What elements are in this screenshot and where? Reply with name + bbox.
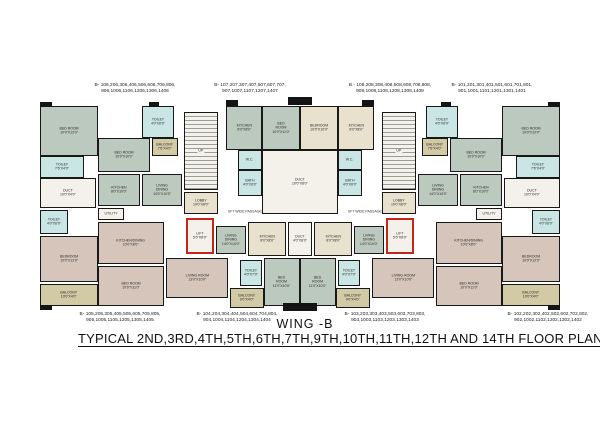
room-label-wc-right: W.C. xyxy=(346,158,354,162)
unit-label-text: B - 108,208,308,408,508,608,708,808,908,… xyxy=(349,82,431,94)
room-utility-left: UTILITY xyxy=(98,208,124,220)
passage-label-text: 6FT WIDE PASSAGE xyxy=(228,210,262,214)
unit-label-bottom-1: B- 105,205,305,405,505,605,705,805,905,1… xyxy=(53,311,188,331)
room-bedroom-far-left-bottom: BEDROOM 10'0"X12'0" xyxy=(40,236,98,282)
room-label-kitchen-center-bottom-left: KITCHEN 8'0"X8'0" xyxy=(259,235,274,243)
room-label-bedroom-right-top: BED ROOM 10'0"X10'0" xyxy=(466,151,485,159)
room-label-bedroom-far-left-bottom: BEDROOM 10'0"X12'0" xyxy=(60,255,78,263)
unit-label-top-4: B- 101,201,301,401,501,601,701,801,901,1… xyxy=(425,82,560,102)
room-utility-right: UTILITY xyxy=(476,208,502,220)
room-wc-right: W.C. xyxy=(338,150,362,170)
unit-label-bottom-3: B- 103,203,303,403,503,603,703,803,903,1… xyxy=(318,311,453,331)
room-stair-left: UP xyxy=(184,112,218,190)
room-label-bedroom-center-bottom-left: BED ROOM 11'0"X10'0" xyxy=(273,276,291,288)
room-kitchen-center-bottom-right: KITCHEN 8'0"X8'0" xyxy=(314,222,352,256)
room-label-duct-center-bottom: DUCT 4'0"X8'0" xyxy=(293,235,307,243)
room-balcony-right-bottom: BALCONY 9'0"X4'0" xyxy=(336,288,370,308)
room-label-living-dining-right-lower: LIVING DINING 14'0"X10'0" xyxy=(360,234,378,246)
room-label-kitchen-dining-right: KITCHEN/DINING 10'0"X8'0" xyxy=(455,239,484,247)
room-lift-left: LIFT 5'0"X8'0" xyxy=(186,218,214,254)
room-label-lobby-left: LOBBY 10'0"X8'0" xyxy=(193,199,209,207)
unit-label-text: B- 104,204,304,404,504,604,704,804,904,1… xyxy=(197,311,278,323)
room-label-lift-right: LIFT 5'0"X8'0" xyxy=(393,232,407,240)
room-living-dining-left: LIVING DINING 14'0"X10'0" xyxy=(142,174,182,206)
room-kitchen-left: KITCHEN 8'0"X10'0" xyxy=(98,174,140,206)
unit-label-top-1: B- 106,206,306,406,506,606,706,806,906,1… xyxy=(68,82,203,102)
wing-title: WING -B xyxy=(277,317,334,331)
wall-tab xyxy=(283,303,317,311)
room-kitchen-center-top-right: KITCHEN 8'0"X8'0" xyxy=(338,106,374,150)
room-label-bedroom-far-right-bottom: BEDROOM 10'0"X12'0" xyxy=(522,255,540,263)
room-label-bedroom-center-top-right: BEDROOM 10'0"X10'0" xyxy=(310,124,328,132)
room-toilet-right-top: TOILET 4'0"X6'0" xyxy=(426,106,458,138)
room-label-kitchen-dining-left: KITCHEN/DINING 10'0"X8'0" xyxy=(117,239,146,247)
room-living-dining-left-lower: LIVING DINING 14'0"X10'0" xyxy=(216,226,246,254)
room-bedroom-right-top: BED ROOM 10'0"X10'0" xyxy=(450,138,502,172)
room-label-stair-left: UP xyxy=(198,149,205,153)
room-duct-center: DUCT 10'0"X8'0" xyxy=(262,150,338,214)
room-label-balcony-right-top: BALCONY 7'6"X4'0" xyxy=(427,143,444,151)
room-label-toilet-right-top: TOILET 4'0"X6'0" xyxy=(435,118,449,126)
room-toilet-center-bottom-left: TOILET 4'0"X7'0" xyxy=(240,260,262,286)
wall-tab xyxy=(548,102,560,107)
room-label-balcony-left-top: BALCONY 7'6"X4'0" xyxy=(157,143,174,151)
room-balcony-far-left-bottom: BALCONY 10'0"X4'0" xyxy=(40,284,98,306)
room-bedroom-center-bottom-right: BED ROOM 11'0"X10'0" xyxy=(300,258,336,306)
room-label-toilet-left-top: TOILET 4'0"X6'0" xyxy=(151,118,165,126)
room-bedroom-left-bottom: BED ROOM 10'0"X11'0" xyxy=(98,266,164,306)
room-bath-left: BATH 4'0"X6'0" xyxy=(238,170,262,196)
room-living-room-right: LIVING ROOM 13'0"X10'0" xyxy=(372,258,434,298)
room-label-toilet-center-bottom-right: TOILET 4'0"X7'0" xyxy=(342,269,356,277)
room-duct-far-right: DUCT 10'0"X4'0" xyxy=(504,178,560,208)
unit-label-text: B- 101,201,301,401,501,601,701,801,901,1… xyxy=(452,82,533,94)
room-label-kitchen-center-top-right: KITCHEN 8'0"X8'0" xyxy=(348,124,363,132)
room-label-kitchen-left: KITCHEN 8'0"X10'0" xyxy=(111,186,127,194)
room-duct-center-bottom: DUCT 4'0"X8'0" xyxy=(288,222,312,256)
room-label-bedroom-far-right-top: BED ROOM 10'0"X12'0" xyxy=(521,127,540,135)
room-label-duct-far-left: DUCT 10'0"X4'0" xyxy=(60,189,76,197)
room-label-living-room-left: LIVING ROOM 13'0"X10'0" xyxy=(185,274,208,282)
room-bedroom-far-left-top: BED ROOM 10'0"X12'0" xyxy=(40,106,98,156)
room-label-bedroom-right-bottom: BED ROOM 10'0"X11'0" xyxy=(459,282,478,290)
room-label-stair-right: UP xyxy=(396,149,403,153)
room-toilet-far-left-mid: TOILET 4'0"X6'0" xyxy=(40,210,68,234)
room-label-duct-far-right: DUCT 10'0"X4'0" xyxy=(524,189,540,197)
floor-plan-canvas: BED ROOM 10'0"X12'0"TOILET 7'6"X4'0"DUCT… xyxy=(0,0,600,424)
wall-tab xyxy=(40,305,52,310)
room-bedroom-right-bottom: BED ROOM 10'0"X11'0" xyxy=(436,266,502,306)
passage-label-2: 6FT WIDE PASSAGE xyxy=(331,208,398,215)
room-label-balcony-far-left-bottom: BALCONY 10'0"X4'0" xyxy=(61,291,78,299)
room-label-bedroom-left-top: BED ROOM 10'0"X10'0" xyxy=(114,151,133,159)
passage-label-text: 6FT WIDE PASSAGE xyxy=(348,210,382,214)
room-bedroom-center-top-right: BEDROOM 10'0"X10'0" xyxy=(300,106,338,150)
room-label-toilet-center-bottom-left: TOILET 4'0"X7'0" xyxy=(244,269,258,277)
room-label-duct-center: DUCT 10'0"X8'0" xyxy=(292,178,308,186)
room-toilet-center-bottom-right: TOILET 4'0"X7'0" xyxy=(338,260,360,286)
room-label-bath-left: BATH 4'0"X6'0" xyxy=(243,179,257,187)
room-living-dining-right-lower: LIVING DINING 14'0"X10'0" xyxy=(354,226,384,254)
room-label-living-room-right: LIVING ROOM 13'0"X10'0" xyxy=(391,274,414,282)
room-label-toilet-far-left-mid: TOILET 4'0"X6'0" xyxy=(47,218,61,226)
wall-tab xyxy=(441,102,451,107)
room-label-kitchen-center-top-left: KITCHEN 8'0"X8'0" xyxy=(236,124,251,132)
unit-label-text: B- 107,207,307,407,507,607,707,907,1007,… xyxy=(214,82,286,94)
room-bedroom-center-bottom-left: BED ROOM 11'0"X10'0" xyxy=(264,258,300,306)
room-toilet-left-top: TOILET 4'0"X6'0" xyxy=(142,106,174,138)
room-balcony-far-right-bottom: BALCONY 10'0"X4'0" xyxy=(502,284,560,306)
room-kitchen-dining-right: KITCHEN/DINING 10'0"X8'0" xyxy=(436,222,502,264)
room-kitchen-right: KITCHEN 8'0"X10'0" xyxy=(460,174,502,206)
room-bedroom-left-top: BED ROOM 10'0"X10'0" xyxy=(98,138,150,172)
room-label-toilet-far-right-mid: TOILET 4'0"X6'0" xyxy=(539,218,553,226)
room-toilet-far-right-top: TOILET 7'6"X4'0" xyxy=(516,156,560,178)
room-toilet-far-right-mid: TOILET 4'0"X6'0" xyxy=(532,210,560,234)
room-toilet-far-left-top: TOILET 7'6"X4'0" xyxy=(40,156,84,178)
room-label-bedroom-center-bottom-right: BED ROOM 11'0"X10'0" xyxy=(309,276,327,288)
unit-label-text: B- 106,206,306,406,506,606,706,806,906,1… xyxy=(95,82,176,94)
room-label-lift-left: LIFT 5'0"X8'0" xyxy=(193,232,207,240)
room-label-balcony-right-bottom: BALCONY 9'0"X4'0" xyxy=(345,294,362,302)
room-living-dining-right: LIVING DINING 14'0"X10'0" xyxy=(418,174,458,206)
room-bedroom-far-right-top: BED ROOM 10'0"X12'0" xyxy=(502,106,560,156)
unit-label-bottom-4: B- 102,202,302,402,502,602,702,802,902,1… xyxy=(481,311,600,331)
room-label-bedroom-left-bottom: BED ROOM 10'0"X11'0" xyxy=(121,282,140,290)
room-label-balcony-left-bottom: BALCONY 9'0"X4'0" xyxy=(239,294,256,302)
plan-title: TYPICAL 2ND,3RD,4TH,5TH,6TH,7TH,9TH,10TH… xyxy=(78,331,600,346)
unit-label-top-2: B- 107,207,307,407,507,607,707,907,1007,… xyxy=(190,82,309,102)
room-label-bath-right: BATH 4'0"X6'0" xyxy=(343,179,357,187)
room-bath-right: BATH 4'0"X6'0" xyxy=(338,170,362,196)
room-kitchen-dining-left: KITCHEN/DINING 10'0"X8'0" xyxy=(98,222,164,264)
room-bedroom-far-right-bottom: BEDROOM 10'0"X12'0" xyxy=(502,236,560,282)
room-label-utility-right: UTILITY xyxy=(482,212,495,216)
room-label-balcony-far-right-bottom: BALCONY 10'0"X4'0" xyxy=(523,291,540,299)
room-bedroom-center-top-left: BED ROOM 10'0"X11'0" xyxy=(262,106,300,150)
room-label-utility-left: UTILITY xyxy=(104,212,117,216)
room-balcony-left-bottom: BALCONY 9'0"X4'0" xyxy=(230,288,264,308)
room-wc-left: W.C. xyxy=(238,150,262,170)
room-duct-far-left: DUCT 10'0"X4'0" xyxy=(40,178,96,208)
room-label-lobby-right: LOBBY 10'0"X8'0" xyxy=(391,199,407,207)
room-label-living-dining-right: LIVING DINING 14'0"X10'0" xyxy=(429,184,448,196)
unit-label-text: B- 105,205,305,405,505,605,705,805,905,1… xyxy=(80,311,161,323)
room-label-kitchen-center-bottom-right: KITCHEN 8'0"X8'0" xyxy=(325,235,340,243)
wall-tab xyxy=(40,102,52,107)
wall-tab xyxy=(149,102,159,107)
passage-label-1: 6FT WIDE PASSAGE xyxy=(211,208,278,215)
unit-label-text: B- 102,202,302,402,502,602,702,802,902,1… xyxy=(508,311,589,323)
room-label-bedroom-center-top-left: BED ROOM 10'0"X11'0" xyxy=(272,122,290,134)
room-stair-right: UP xyxy=(382,112,416,190)
room-balcony-right-top: BALCONY 7'6"X4'0" xyxy=(422,138,448,156)
room-label-toilet-far-right-top: TOILET 7'6"X4'0" xyxy=(531,163,545,171)
room-kitchen-center-top-left: KITCHEN 8'0"X8'0" xyxy=(226,106,262,150)
room-kitchen-center-bottom-left: KITCHEN 8'0"X8'0" xyxy=(248,222,286,256)
room-label-kitchen-right: KITCHEN 8'0"X10'0" xyxy=(473,186,489,194)
room-balcony-left-top: BALCONY 7'6"X4'0" xyxy=(152,138,178,156)
room-lift-right: LIFT 5'0"X8'0" xyxy=(386,218,414,254)
room-label-bedroom-far-left-top: BED ROOM 10'0"X12'0" xyxy=(59,127,78,135)
unit-label-text: B- 103,203,303,403,503,603,703,803,903,1… xyxy=(345,311,426,323)
room-label-toilet-far-left-top: TOILET 7'6"X4'0" xyxy=(55,163,69,171)
wall-tab xyxy=(548,305,560,310)
room-label-living-dining-left: LIVING DINING 14'0"X10'0" xyxy=(153,184,172,196)
room-label-wc-left: W.C. xyxy=(246,158,254,162)
room-label-living-dining-left-lower: LIVING DINING 14'0"X10'0" xyxy=(222,234,240,246)
room-living-room-left: LIVING ROOM 13'0"X10'0" xyxy=(166,258,228,298)
